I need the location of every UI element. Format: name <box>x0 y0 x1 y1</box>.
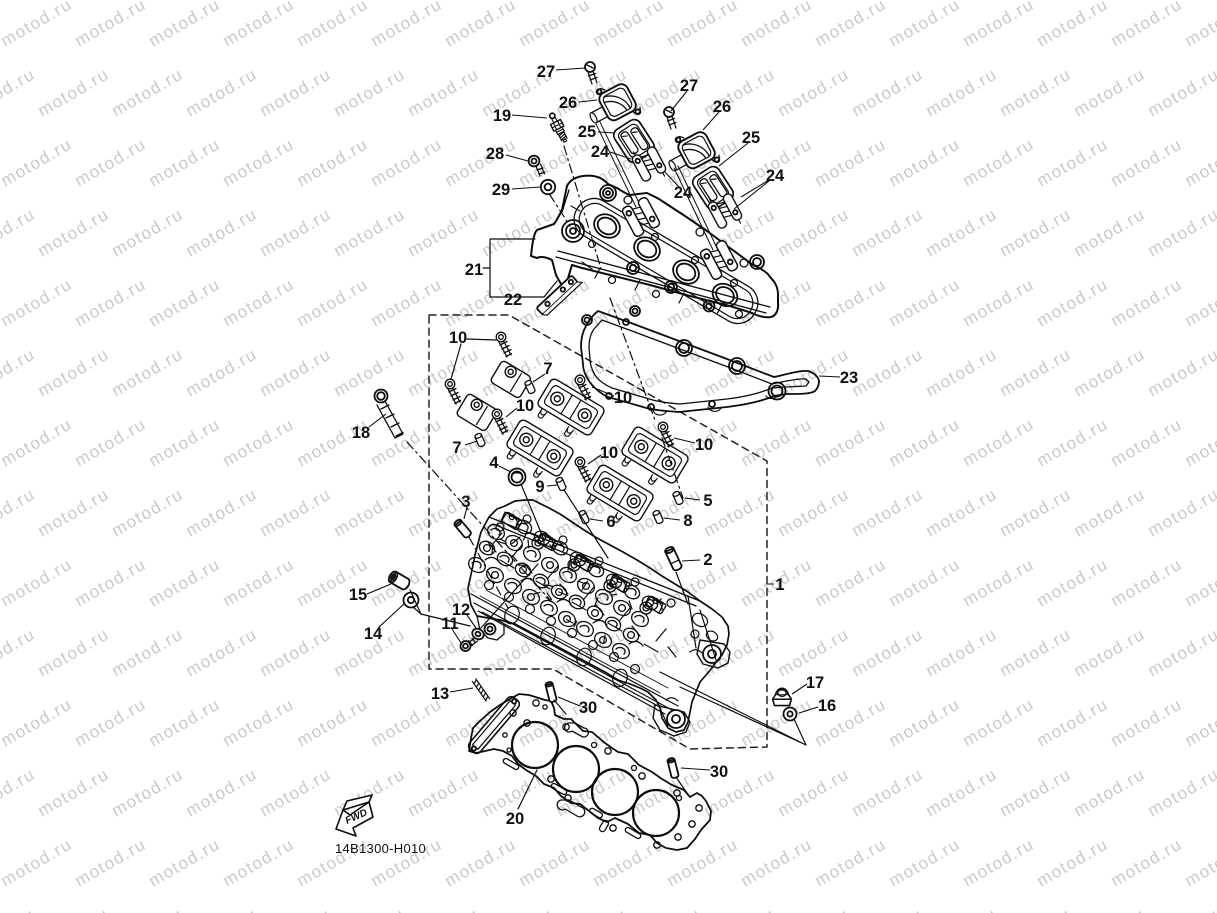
svg-text:26: 26 <box>713 98 731 116</box>
svg-text:28: 28 <box>486 145 504 163</box>
svg-text:24: 24 <box>766 167 785 185</box>
svg-text:3: 3 <box>461 493 470 511</box>
svg-text:10: 10 <box>600 444 618 462</box>
svg-text:22: 22 <box>504 291 522 309</box>
svg-text:6: 6 <box>606 513 615 531</box>
svg-text:14: 14 <box>364 625 383 643</box>
svg-text:16: 16 <box>818 697 836 715</box>
svg-text:12: 12 <box>452 601 470 619</box>
svg-text:7: 7 <box>452 439 461 457</box>
svg-text:10: 10 <box>449 329 467 347</box>
svg-text:14B1300-H010: 14B1300-H010 <box>335 841 426 856</box>
svg-text:5: 5 <box>703 492 712 510</box>
svg-text:17: 17 <box>806 674 824 692</box>
svg-text:19: 19 <box>493 107 511 125</box>
svg-text:1: 1 <box>775 576 784 594</box>
svg-text:2: 2 <box>703 551 712 569</box>
svg-text:30: 30 <box>579 699 597 717</box>
svg-text:23: 23 <box>840 369 858 387</box>
svg-text:29: 29 <box>492 181 510 199</box>
svg-text:24: 24 <box>674 184 693 202</box>
svg-text:8: 8 <box>683 512 692 530</box>
svg-text:27: 27 <box>680 77 698 95</box>
svg-text:10: 10 <box>614 389 632 407</box>
svg-text:9: 9 <box>535 478 544 496</box>
svg-text:26: 26 <box>559 94 577 112</box>
svg-text:7: 7 <box>543 360 552 378</box>
svg-text:27: 27 <box>537 63 555 81</box>
svg-text:10: 10 <box>695 436 713 454</box>
svg-text:10: 10 <box>516 397 534 415</box>
svg-text:4: 4 <box>489 454 499 472</box>
svg-text:21: 21 <box>465 261 483 279</box>
svg-text:30: 30 <box>710 763 728 781</box>
svg-text:13: 13 <box>431 685 449 703</box>
svg-text:25: 25 <box>578 123 596 141</box>
svg-text:24: 24 <box>591 143 610 161</box>
svg-text:25: 25 <box>742 129 760 147</box>
svg-text:15: 15 <box>349 586 367 604</box>
svg-text:20: 20 <box>506 810 524 828</box>
svg-text:18: 18 <box>352 424 370 442</box>
